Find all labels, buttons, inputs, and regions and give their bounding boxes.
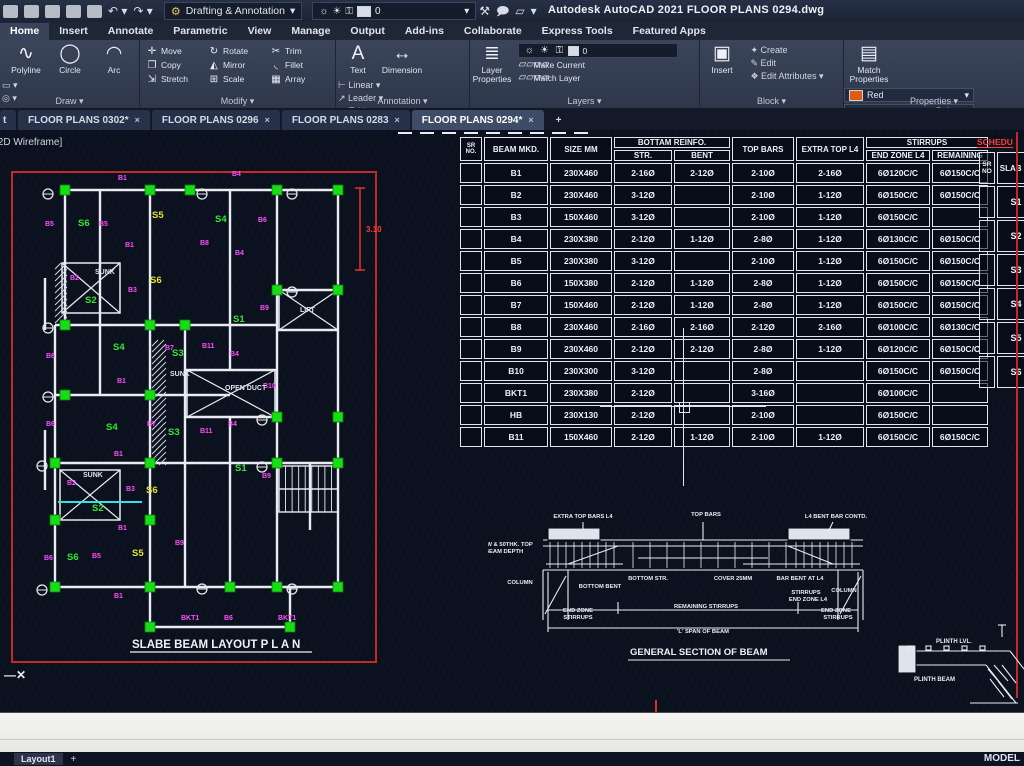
workspace-label: Drafting & Annotation xyxy=(186,5,285,17)
hatch-line xyxy=(55,263,61,269)
plan-label: S4 xyxy=(106,422,118,433)
grip[interactable] xyxy=(145,458,155,468)
panel-title-annotation[interactable]: Annotation ▾ xyxy=(336,96,469,107)
close-icon[interactable]: × xyxy=(265,115,270,125)
model-space-indicator[interactable]: MODEL xyxy=(984,753,1020,764)
cell-sr xyxy=(460,185,482,205)
file-tab-floor-plans-0283[interactable]: FLOOR PLANS 0283× xyxy=(282,110,410,130)
arc-button[interactable]: ◠Arc xyxy=(92,43,136,75)
plan-label: B1 xyxy=(117,378,126,385)
layer-name: 0 xyxy=(582,46,587,56)
section-label: BAR BENT AT L4 xyxy=(776,576,824,582)
cell-str: 3-12Ø xyxy=(614,207,672,227)
chat-icon[interactable]: 🗩 xyxy=(496,0,509,22)
file-tab-floor-plans-0294-[interactable]: FLOOR PLANS 0294*× xyxy=(412,110,544,130)
hatch-line xyxy=(152,428,166,442)
ribbon-tab-view[interactable]: View xyxy=(238,23,282,40)
beam-col-header: BENT xyxy=(674,150,730,161)
layer-control[interactable]: ☼ ☀ ⚿ 0 ▾ xyxy=(312,2,476,20)
cell-mkd: HB xyxy=(484,405,548,425)
cell-endzone: 6Ø120C/C xyxy=(866,163,930,183)
cell-top: 2-8Ø xyxy=(732,339,794,359)
mirror-icon: ◭ xyxy=(208,60,220,71)
new-file-tab-button[interactable]: + xyxy=(546,110,572,130)
grip[interactable] xyxy=(272,458,282,468)
plan-label: B3 xyxy=(126,486,135,493)
ribbon-tab-featured-apps[interactable]: Featured Apps xyxy=(623,23,716,40)
trim-icon: ✂ xyxy=(270,46,282,57)
save-as-icon[interactable] xyxy=(66,5,81,18)
cell-str: 3-12Ø xyxy=(614,251,672,271)
slab-cell-mark: S4 xyxy=(997,288,1024,320)
ribbon-tab-collaborate[interactable]: Collaborate xyxy=(454,23,532,40)
plan-label: S4 xyxy=(113,342,125,353)
beam-col-header: STIRRUPS xyxy=(866,137,988,148)
panel-properties: ▤ Match Properties Red ▾ ByLayer ByLayer xyxy=(844,40,1024,108)
file-tab-partial[interactable]: t xyxy=(0,110,16,130)
ribbon-tab-manage[interactable]: Manage xyxy=(281,23,340,40)
hatch-line xyxy=(152,374,166,388)
dimension-icon: ↔ xyxy=(393,43,412,65)
plan-label: B6 xyxy=(258,217,267,224)
scale-button[interactable]: ⊞Scale xyxy=(208,72,270,86)
block-extra-tools: ✦ Create✎ Edit❖ Edit Attributes ▾ xyxy=(750,45,823,82)
bulb-icon: ☼ xyxy=(523,45,535,56)
gear-icon: ⚙ xyxy=(171,5,181,18)
cell-remaining xyxy=(932,405,988,425)
section-label: 'L' SPAN OF BEAM xyxy=(677,629,729,635)
cell-str: 3-12Ø xyxy=(614,185,672,205)
grip[interactable] xyxy=(272,285,282,295)
grip[interactable] xyxy=(180,320,190,330)
match-properties-button[interactable]: ▤ Match Properties xyxy=(844,43,894,84)
cell-str: 2-12Ø xyxy=(614,295,672,315)
polyline-label: Polyline xyxy=(11,66,41,75)
cell-size: 230X380 xyxy=(550,229,612,249)
plan-label: B9 xyxy=(175,540,184,547)
grip[interactable] xyxy=(145,622,155,632)
cell-extra: 1-12Ø xyxy=(796,229,864,249)
grip[interactable] xyxy=(60,185,70,195)
ribbon-tab-home[interactable]: Home xyxy=(0,23,49,40)
plan-label: B2 xyxy=(67,480,76,487)
layer-name: 0 xyxy=(375,6,381,17)
cell-mkd: B9 xyxy=(484,339,548,359)
plan-label: B4 xyxy=(232,171,241,178)
hatch-line xyxy=(152,404,166,418)
slab-cell-mark: S1 xyxy=(997,186,1024,218)
panel-block: ▣ Insert ✦ Create✎ Edit❖ Edit Attributes… xyxy=(700,40,844,108)
copy-icon: ❐ xyxy=(146,60,158,71)
beam-schedule-row: B11150X4602-12Ø1-12Ø2-10Ø1-12Ø6Ø150C/C6Ø… xyxy=(460,427,988,447)
file-tab-label: FLOOR PLANS 0296 xyxy=(162,115,259,126)
fillet-icon: ◟ xyxy=(270,60,282,71)
trim-label: Trim xyxy=(285,46,302,56)
circle-button[interactable]: ◯Circle xyxy=(48,43,92,75)
create-button[interactable]: ✦ Create xyxy=(750,45,823,56)
cell-size: 230X460 xyxy=(550,185,612,205)
cell-mkd: B6 xyxy=(484,273,548,293)
section-title: GENERAL SECTION OF BEAM xyxy=(630,647,768,658)
open-file-icon[interactable] xyxy=(24,5,39,18)
cell-extra xyxy=(796,405,864,425)
plan-label: S3 xyxy=(172,348,184,359)
hatch-line xyxy=(165,464,166,465)
move-button[interactable]: ✛Move xyxy=(146,44,208,58)
cell-sr xyxy=(460,229,482,249)
cell-sr xyxy=(460,405,482,425)
panel-title-draw[interactable]: Draw ▾ xyxy=(0,96,139,107)
plan-label: B6 xyxy=(46,353,55,360)
grip[interactable] xyxy=(333,582,343,592)
cell-top: 2-10Ø xyxy=(732,207,794,227)
stretch-button[interactable]: ⇲Stretch xyxy=(146,72,208,86)
plinth-linework xyxy=(898,625,1024,703)
plan-label: B8 xyxy=(200,240,209,247)
beam-schedule-row: B6150X3802-12Ø1-12Ø2-8Ø1-12Ø6Ø150C/C6Ø15… xyxy=(460,273,988,293)
rotate-button[interactable]: ↻Rotate xyxy=(208,44,270,58)
grip[interactable] xyxy=(333,285,343,295)
plan-title: SLABE BEAM LAYOUT P L A N xyxy=(132,639,300,651)
panel-title-properties[interactable]: Properties ▾ xyxy=(844,96,1024,107)
save-icon[interactable] xyxy=(45,5,60,18)
plan-label: B1 xyxy=(114,451,123,458)
plan-label: B6 xyxy=(224,615,233,622)
chevron-down-icon: ▾ xyxy=(464,6,469,17)
close-icon[interactable]: × xyxy=(395,115,400,125)
plan-label: B1 xyxy=(118,175,127,182)
cell-size: 150X460 xyxy=(550,295,612,315)
section-label: COLUMN xyxy=(831,588,856,594)
grip[interactable] xyxy=(333,458,343,468)
array-label: Array xyxy=(285,74,305,84)
copy-button[interactable]: ❐Copy xyxy=(146,58,208,72)
arc-icon: ◠ xyxy=(106,43,123,65)
hatch-line xyxy=(152,350,166,364)
cell-extra: 1-12Ø xyxy=(796,339,864,359)
cell-size: 230X460 xyxy=(550,317,612,337)
text-icon: A xyxy=(352,43,365,65)
cell-sr xyxy=(460,383,482,403)
cell-bent xyxy=(674,185,730,205)
beam-schedule-row: B10230X3003-12Ø2-8Ø6Ø150C/C6Ø150C/C xyxy=(460,361,988,381)
cell-top: 2-10Ø xyxy=(732,163,794,183)
cell-endzone: 6Ø100C/C xyxy=(866,383,930,403)
redo-icon[interactable]: ↷ ▾ xyxy=(133,0,152,22)
match-layer-button[interactable]: ▱▱▱▱ Match Layer xyxy=(518,71,678,84)
cell-mkd: B5 xyxy=(484,251,548,271)
cell-top: 2-8Ø xyxy=(732,229,794,249)
cell-size: 230X130 xyxy=(550,405,612,425)
cell-bent xyxy=(674,251,730,271)
section-label: 7W & 50THK. TOP xyxy=(488,542,533,548)
text-label: Text xyxy=(350,66,366,75)
grip[interactable] xyxy=(272,185,282,195)
ribbon-tab-output[interactable]: Output xyxy=(340,23,394,40)
sun-icon: ☀ xyxy=(332,6,341,17)
beam-col-header: BOTTAM REINFO. xyxy=(614,137,730,148)
tool-icon[interactable]: ⚒ xyxy=(479,0,490,22)
grip[interactable] xyxy=(285,622,295,632)
cell-sr xyxy=(460,339,482,359)
slab-cell-sr xyxy=(979,220,995,252)
grip[interactable] xyxy=(145,185,155,195)
plan-label: B1 xyxy=(118,525,127,532)
cell-str: 2-12Ø xyxy=(614,427,672,447)
tab-layout1[interactable]: Layout1 xyxy=(14,753,63,765)
grip[interactable] xyxy=(272,582,282,592)
plan-label: SUNK xyxy=(83,472,103,479)
beam-col-header: STR. xyxy=(614,150,672,161)
ucs-icon: —✕ xyxy=(4,668,26,682)
cell-mkd: B8 xyxy=(484,317,548,337)
chevron-down-icon[interactable]: ▾ xyxy=(531,0,537,22)
hatch-line xyxy=(152,340,158,346)
rotate-icon: ↻ xyxy=(208,46,220,57)
make-current-button[interactable]: ▱▱▱▱ Make Current xyxy=(518,58,678,71)
plinth-detail-diagram[interactable]: PLINTH LVL.PLINTH BEAM xyxy=(890,613,1024,712)
ribbon: ∿Polyline◯Circle◠Arc ▭ ▾ ◎ ▾ ▨ ▾ Draw ▾ … xyxy=(0,40,1024,108)
cell-str: 2-12Ø xyxy=(614,383,672,403)
panel-title-modify[interactable]: Modify ▾ xyxy=(140,96,335,107)
slab-cell-mark: S5 xyxy=(997,322,1024,354)
edit-attributes-button[interactable]: ❖ Edit Attributes ▾ xyxy=(750,71,823,82)
cell-top: 2-10Ø xyxy=(732,427,794,447)
plan-label: S1 xyxy=(235,463,247,474)
grip[interactable] xyxy=(50,515,60,525)
plan-label: S6 xyxy=(78,218,90,229)
panel-title-layers[interactable]: Layers ▾ xyxy=(470,96,699,107)
file-tab-floor-plans-0296[interactable]: FLOOR PLANS 0296× xyxy=(152,110,280,130)
plan-label: S5 xyxy=(152,210,164,221)
file-tab-label: FLOOR PLANS 0283 xyxy=(292,115,389,126)
new-file-icon[interactable] xyxy=(3,5,18,18)
layer-stack-icon: ≣ xyxy=(484,43,500,65)
grip[interactable] xyxy=(333,412,343,422)
match-properties-icon: ▤ xyxy=(860,43,878,65)
app-title: Autodesk AutoCAD 2021 FLOOR PLANS 0294.d… xyxy=(548,4,824,16)
red-tick-mark xyxy=(655,700,657,712)
layer-tools-icons: ▱▱▱▱ xyxy=(518,72,530,83)
plinth-label: PLINTH BEAM xyxy=(914,677,955,683)
linear-button[interactable]: ⊢ Linear ▾ xyxy=(338,80,383,91)
grip[interactable] xyxy=(145,390,155,400)
text-button[interactable]: AText xyxy=(336,43,380,75)
insert-block-button[interactable]: ▣ Insert xyxy=(700,43,744,75)
cell-top: 2-8Ø xyxy=(732,361,794,381)
layer-color-swatch xyxy=(568,46,579,56)
title-bar: ↶ ▾ ↷ ▾ ⚙ Drafting & Annotation ▾ ☼ ☀ ⚿ … xyxy=(0,0,1024,22)
file-tab-floor-plans-0302-[interactable]: FLOOR PLANS 0302*× xyxy=(18,110,150,130)
panel-annotation: AText↔Dimension ⊢ Linear ▾↗ Leader ▾▦ Ta… xyxy=(336,40,470,108)
scale-label: Scale xyxy=(223,74,244,84)
workspace-switcher[interactable]: ⚙ Drafting & Annotation ▾ xyxy=(164,2,302,20)
section-label: END ZONE L4 xyxy=(789,597,828,603)
slab-header-sr: SR NO xyxy=(979,152,995,184)
section-label: STIRRUPS xyxy=(823,615,852,621)
plan-label: S2 xyxy=(92,503,104,514)
cell-bent: 1-12Ø xyxy=(674,229,730,249)
layer-color-swatch xyxy=(357,6,371,17)
edit-button[interactable]: ✎ Edit xyxy=(750,58,823,69)
section-label: BOTTOM BENT xyxy=(579,584,622,590)
plan-label: B6 xyxy=(46,421,55,428)
ribbon-tab-parametric[interactable]: Parametric xyxy=(163,23,237,40)
grip[interactable] xyxy=(185,185,195,195)
dimension-text: 3.10 xyxy=(366,225,382,234)
trim-button[interactable]: ✂Trim xyxy=(270,44,332,58)
dimension-button[interactable]: ↔Dimension xyxy=(380,43,424,75)
grip[interactable] xyxy=(272,412,282,422)
plan-label: S2 xyxy=(85,295,97,306)
plan-label: B5 xyxy=(92,553,101,560)
grip[interactable] xyxy=(145,515,155,525)
crosshair-pickbox xyxy=(679,402,690,413)
grip[interactable] xyxy=(60,320,70,330)
hatch-line xyxy=(152,344,166,358)
grip[interactable] xyxy=(50,458,60,468)
undo-icon[interactable]: ↶ ▾ xyxy=(108,0,127,22)
cell-size: 150X460 xyxy=(550,427,612,447)
cell-endzone: 6Ø100C/C xyxy=(866,317,930,337)
folder-icon[interactable]: ▱ xyxy=(515,0,524,22)
beam-schedule-row: B2230X4603-12Ø2-10Ø1-12Ø6Ø150C/C6Ø150C/C xyxy=(460,185,988,205)
command-line[interactable] xyxy=(0,712,1024,753)
section-label: COVER 25MM xyxy=(714,576,753,582)
array-icon: ▦ xyxy=(270,74,282,85)
beam-schedule-row: B9230X4602-12Ø2-12Ø2-8Ø1-12Ø6Ø120C/C6Ø15… xyxy=(460,339,988,359)
plan-label: B4 xyxy=(228,421,237,428)
command-line-divider xyxy=(0,739,1024,740)
cell-str: 2-12Ø xyxy=(614,405,672,425)
hatch-line xyxy=(152,440,166,454)
plan-label: OPEN DUCT xyxy=(225,385,267,392)
dimension-label: Dimension xyxy=(382,66,422,75)
cell-remaining: 6Ø150C/C xyxy=(932,427,988,447)
circle-label: Circle xyxy=(59,66,81,75)
layer-properties-button[interactable]: ≣ Layer Properties xyxy=(470,43,514,84)
mirror-button[interactable]: ◭Mirror xyxy=(208,58,270,72)
slab-cell-sr xyxy=(979,322,995,354)
section-label: REMAINING STIRRUPS xyxy=(674,604,738,610)
grip[interactable] xyxy=(60,390,70,400)
cell-str: 2-16Ø xyxy=(614,163,672,183)
grip[interactable] xyxy=(50,582,60,592)
grip[interactable] xyxy=(333,185,343,195)
cell-top: 2-8Ø xyxy=(732,273,794,293)
plan-label: S5 xyxy=(132,548,144,559)
cell-endzone: 6Ø150C/C xyxy=(866,273,930,293)
floor-plan-drawing[interactable]: SLABE BEAM LAYOUT P L A N 3.10B1B1B1B1B1… xyxy=(0,130,450,712)
close-icon[interactable]: × xyxy=(135,115,140,125)
slab-cell-sr xyxy=(979,356,995,388)
insert-block-icon: ▣ xyxy=(713,43,731,65)
ribbon-layer-control[interactable]: ☼ ☀ ⚿ 0 xyxy=(518,43,678,58)
close-icon[interactable]: × xyxy=(528,115,533,125)
section-label: BEAM DEPTH xyxy=(488,549,523,555)
rectangle-icon[interactable]: ▭ ▾ xyxy=(2,80,18,91)
sun-icon: ☀ xyxy=(538,45,550,56)
beam-schedule: SR NO.BEAM MKD.SIZE MMBOTTAM REINFO.TOP … xyxy=(458,135,990,449)
ribbon-tab-add-ins[interactable]: Add-ins xyxy=(395,23,454,40)
ribbon-tab-annotate[interactable]: Annotate xyxy=(98,23,164,40)
cell-sr xyxy=(460,427,482,447)
modify-tools: ✛Move↻Rotate✂Trim❐Copy◭Mirror◟Fillet⇲Str… xyxy=(146,44,335,86)
plot-icon[interactable] xyxy=(87,5,102,18)
cell-endzone: 6Ø150C/C xyxy=(866,405,930,425)
arc-label: Arc xyxy=(108,66,121,75)
array-button[interactable]: ▦Array xyxy=(270,72,332,86)
ribbon-tab-insert[interactable]: Insert xyxy=(49,23,98,40)
autocad-window: ↶ ▾ ↷ ▾ ⚙ Drafting & Annotation ▾ ☼ ☀ ⚿ … xyxy=(0,0,1024,766)
plan-label: B3 xyxy=(128,287,137,294)
cell-sr xyxy=(460,207,482,227)
slab-cell-mark: S2 xyxy=(997,220,1024,252)
drawing-canvas[interactable]: [2D Wireframe] SLABE BEAM LAYOUT P L A N… xyxy=(0,130,1024,712)
panel-draw: ∿Polyline◯Circle◠Arc ▭ ▾ ◎ ▾ ▨ ▾ Draw ▾ xyxy=(0,40,140,108)
cell-top: 2-10Ø xyxy=(732,185,794,205)
draw-tools: ∿Polyline◯Circle◠Arc xyxy=(4,40,139,75)
plan-label: S6 xyxy=(150,275,162,286)
file-tab-label: FLOOR PLANS 0302* xyxy=(28,115,129,126)
cell-size: 230X380 xyxy=(550,383,612,403)
cell-endzone: 6Ø150C/C xyxy=(866,185,930,205)
cell-sr xyxy=(460,295,482,315)
beam-schedule-row: B5230X3803-12Ø2-10Ø1-12Ø6Ø150C/C6Ø150C/C xyxy=(460,251,988,271)
cell-mkd: B11 xyxy=(484,427,548,447)
cell-extra: 1-12Ø xyxy=(796,273,864,293)
new-layout-button[interactable]: + xyxy=(71,754,77,765)
plan-label: B4 xyxy=(230,351,239,358)
cell-endzone: 6Ø150C/C xyxy=(866,207,930,227)
cell-bent xyxy=(674,207,730,227)
panel-title-block[interactable]: Block ▾ xyxy=(700,96,843,107)
cell-extra: 1-12Ø xyxy=(796,185,864,205)
beam-col-header: BEAM MKD. xyxy=(484,137,548,161)
plan-label: SUNK xyxy=(95,269,115,276)
section-label: END ZONE xyxy=(821,608,851,614)
slab-header-slab: SLAB xyxy=(997,152,1024,184)
grip[interactable] xyxy=(225,582,235,592)
chevron-down-icon: ▾ xyxy=(290,5,295,17)
grip[interactable] xyxy=(145,320,155,330)
beam-section-diagram[interactable]: GENERAL SECTION OF BEAM EXTRA TOP BARS L… xyxy=(488,502,918,672)
plan-label: LIFT xyxy=(300,307,315,314)
plan-label: S1 xyxy=(233,314,245,325)
cell-extra: 1-12Ø xyxy=(796,251,864,271)
polyline-button[interactable]: ∿Polyline xyxy=(4,43,48,75)
fillet-button[interactable]: ◟Fillet xyxy=(270,58,332,72)
plan-label: S4 xyxy=(215,214,227,225)
plan-label: BKT1 xyxy=(181,615,199,622)
cell-mkd: BKT1 xyxy=(484,383,548,403)
cell-bent: 1-12Ø xyxy=(674,295,730,315)
cell-endzone: 6Ø150C/C xyxy=(866,251,930,271)
cell-sr xyxy=(460,317,482,337)
slab-cell-sr xyxy=(979,186,995,218)
beam-col-header: SR NO. xyxy=(460,137,482,161)
circle-icon: ◯ xyxy=(59,43,80,65)
move-icon: ✛ xyxy=(146,46,158,57)
plan-label: B11 xyxy=(202,343,215,350)
cell-sr xyxy=(460,163,482,183)
beam-schedule-row: HB230X1302-12Ø2-10Ø6Ø150C/C xyxy=(460,405,988,425)
scale-icon: ⊞ xyxy=(208,74,220,85)
cell-extra: 1-12Ø xyxy=(796,427,864,447)
beam-schedule-table: SR NO.BEAM MKD.SIZE MMBOTTAM REINFO.TOP … xyxy=(458,135,990,449)
grip[interactable] xyxy=(145,582,155,592)
ribbon-tab-express-tools[interactable]: Express Tools xyxy=(532,23,623,40)
